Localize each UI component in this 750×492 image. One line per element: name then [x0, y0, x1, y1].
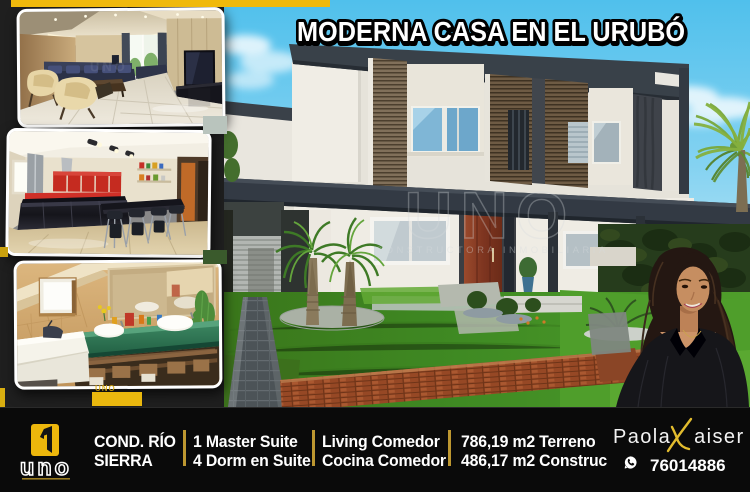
svg-text:uno: uno: [20, 454, 72, 480]
svg-text:UNO: UNO: [90, 59, 128, 74]
svg-text:UNO: UNO: [405, 178, 576, 252]
svg-text:CONSTRUCTORA INMOBILIARIA: CONSTRUCTORA INMOBILIARIA: [375, 245, 609, 256]
svg-text:MODERNA CASA EN EL URUBÓ: MODERNA CASA EN EL URUBÓ: [297, 16, 685, 47]
